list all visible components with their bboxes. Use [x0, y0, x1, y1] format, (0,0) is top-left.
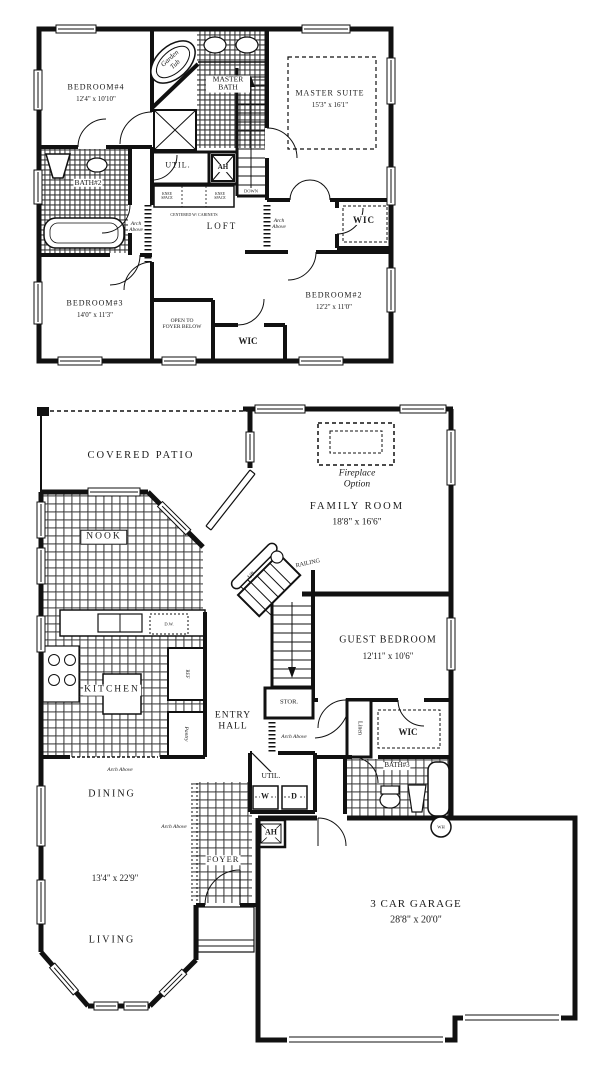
room-label-dining: DINING [88, 788, 136, 799]
fixture-label-washer: W [260, 793, 270, 802]
room-label-master-suite: MASTER SUITE [295, 90, 364, 99]
room-label-family-room: FAMILY ROOM [310, 501, 404, 513]
note-knee-space-left: KNEE SPACE [155, 192, 179, 201]
note-open-to-foyer: OPEN TO FOYER BELOW [161, 318, 203, 330]
floorplan-page: BEDROOM#4 12'4" x 10'10" Garden Tub MAST… [0, 0, 600, 1067]
room-dims-family-room: 18'8" x 16'6" [332, 518, 381, 529]
note-arch-above-entry: Arch Above [281, 734, 307, 740]
room-label-covered-patio: COVERED PATIO [88, 450, 195, 462]
room-label-util-1f: UTIL. [261, 772, 282, 780]
note-centered-cabinets: CENTERED W/ CABINETS [163, 213, 225, 217]
room-label-wic-1f: WIC [397, 727, 418, 737]
room-dims-bedroom2: 12'2" x 11'0" [316, 304, 352, 312]
room-label-garage: 3 CAR GARAGE [370, 898, 461, 910]
room-label-kitchen: KITCHEN [83, 685, 141, 696]
room-label-guest-bedroom: GUEST BEDROOM [339, 634, 437, 645]
fixture-label-dryer: D [290, 793, 298, 802]
room-dims-bedroom4: 12'4" x 10'10" [76, 96, 116, 104]
room-label-bedroom2: BEDROOM#2 [305, 292, 362, 301]
equip-label-ah-1f: AH [264, 829, 278, 838]
room-label-bath3: BATH#3 [383, 762, 410, 770]
fixture-label-refrigerator: REF [183, 669, 189, 678]
room-label-bedroom4: BEDROOM#4 [67, 84, 124, 93]
room-label-master-bath: MASTER BATH [206, 76, 250, 93]
room-label-loft: LOFT [207, 221, 238, 231]
room-label-util-2f: UTIL. [165, 162, 190, 171]
room-label-wic-master: WIC [352, 215, 376, 225]
fixture-label-dishwasher: D.W. [164, 621, 173, 626]
room-label-bedroom3: BEDROOM#3 [66, 300, 123, 309]
note-arch-above-foyer: Arch Above [161, 824, 187, 830]
room-label-pantry: Pantry [183, 727, 189, 742]
room-dims-dining-living: 13'4" x 22'9" [92, 873, 139, 883]
room-label-foyer: FOYER [206, 855, 241, 865]
note-fireplace-option: Fireplace Option [328, 468, 386, 489]
equip-label-water-heater: WH [437, 824, 445, 829]
note-arch-above-kitchen: Arch Above [107, 767, 133, 773]
note-knee-space-right: KNEE SPACE [208, 192, 232, 201]
room-dims-guest-bedroom: 12'11" x 10'6" [363, 651, 414, 661]
room-dims-garage: 28'8" x 20'0" [390, 914, 442, 925]
note-arch-above-2f-left: Arch Above [124, 221, 148, 233]
stairs-label-down: DOWN [243, 188, 259, 193]
room-label-bath2: BATH#2 [73, 179, 102, 187]
room-label-living: LIVING [89, 934, 135, 945]
room-label-nook: NOOK [80, 530, 127, 545]
room-dims-bedroom3: 14'0" x 11'3" [77, 312, 113, 320]
room-label-stor: STOR. [279, 698, 299, 705]
room-label-wic-hall-2f: WIC [238, 336, 257, 346]
note-arch-above-2f-right: Arch Above [267, 218, 291, 230]
room-label-entry-hall: ENTRY HALL [208, 710, 258, 731]
room-dims-master-suite: 15'3" x 16'1" [312, 102, 348, 110]
equip-label-ah-2f: AH [217, 164, 230, 172]
room-label-linen: Linen [356, 721, 363, 735]
